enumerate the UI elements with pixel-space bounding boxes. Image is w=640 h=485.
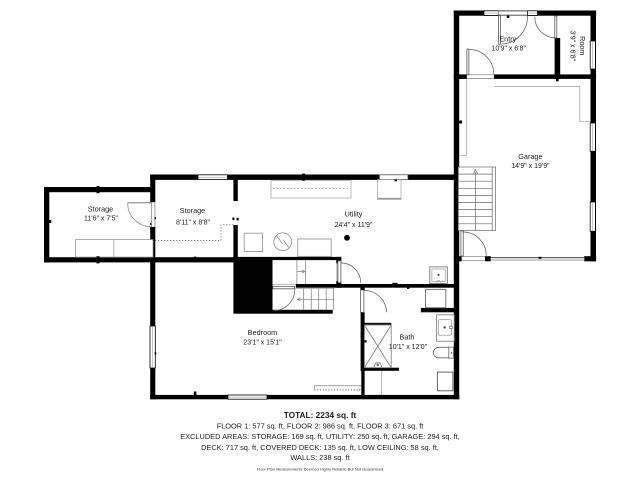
svg-text:10'9" x 6'8": 10'9" x 6'8" <box>491 46 526 53</box>
svg-text:Utility: Utility <box>345 210 363 219</box>
svg-text:EXCLUDED AREAS: STORAGE: 169 s: EXCLUDED AREAS: STORAGE: 169 sq. ft, UTI… <box>180 432 460 441</box>
svg-text:Floor Plan Measurements Deemed: Floor Plan Measurements Deemed Highly Re… <box>257 467 384 472</box>
svg-text:Room: Room <box>578 36 587 55</box>
svg-text:3'9" x 6'8": 3'9" x 6'8" <box>569 30 576 61</box>
svg-text:11'6" x 7'5": 11'6" x 7'5" <box>84 215 118 222</box>
svg-text:FLOOR 1: 577 sq. ft, FLOOR 2:: FLOOR 1: 577 sq. ft, FLOOR 2: 986 sq. ft… <box>217 421 424 430</box>
svg-text:Bath: Bath <box>400 333 415 342</box>
svg-text:8'11" x 8'8": 8'11" x 8'8" <box>176 220 210 227</box>
svg-text:10'1" x 12'0": 10'1" x 12'0" <box>389 344 428 351</box>
svg-text:Storage: Storage <box>180 206 205 215</box>
svg-text:WALLS: 238 sq. ft: WALLS: 238 sq. ft <box>290 453 349 462</box>
svg-text:Garage: Garage <box>518 152 542 161</box>
svg-text:TOTAL: 2234 sq. ft: TOTAL: 2234 sq. ft <box>284 410 357 420</box>
svg-text:Bedroom: Bedroom <box>248 328 277 337</box>
svg-text:DECK: 717 sq. ft, COVERED DECK: DECK: 717 sq. ft, COVERED DECK: 135 sq. … <box>201 443 439 452</box>
svg-text:23'1" x 15'1": 23'1" x 15'1" <box>243 339 282 346</box>
svg-text:Storage: Storage <box>88 205 113 214</box>
svg-text:Entry: Entry <box>499 35 516 44</box>
svg-text:14'9" x 19'9": 14'9" x 19'9" <box>511 163 550 170</box>
svg-text:24'4" x 11'9": 24'4" x 11'9" <box>335 222 373 229</box>
